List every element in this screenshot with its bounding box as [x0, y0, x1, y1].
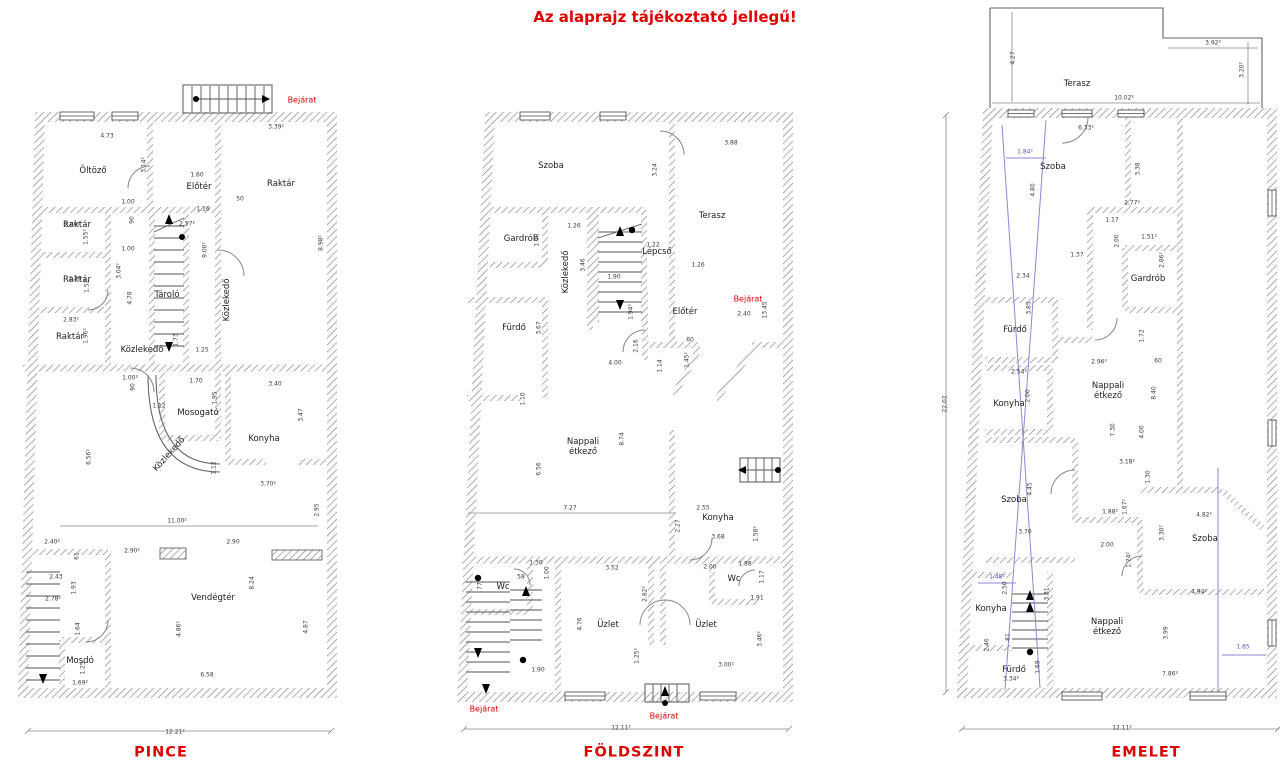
floorplan-drawing — [0, 0, 1280, 765]
emelet-walls — [943, 8, 1280, 732]
drawing-disclaimer: Az alaprajz tájékoztató jellegű! — [533, 8, 797, 26]
pince-walls — [23, 85, 334, 734]
floorplan-sheet: Az alaprajz tájékoztató jellegű! ÖltözőE… — [0, 0, 1280, 765]
foldszint-walls — [461, 112, 792, 732]
